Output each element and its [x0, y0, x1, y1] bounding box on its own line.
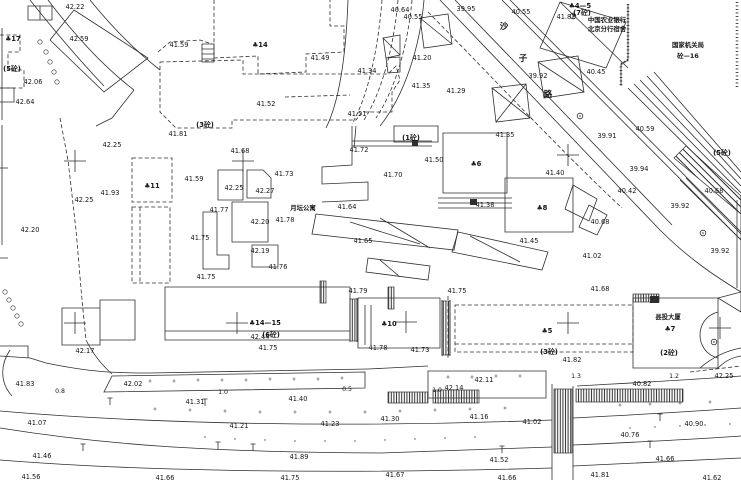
distance-label: 1.2: [669, 373, 679, 380]
spot-elevation-label: 42.11: [475, 376, 494, 384]
spot-elevation-label: 42.02: [124, 380, 143, 388]
spot-elevation-label: 41.78: [369, 344, 388, 352]
spot-elevation-label: 41.68: [231, 147, 250, 155]
plus-mark: [258, 410, 261, 413]
dot-mark: [414, 438, 415, 439]
spot-elevation-label: 40.45: [587, 68, 606, 76]
spot-elevation-label: 41.56: [22, 473, 41, 480]
grid-cross: [709, 317, 731, 339]
hedge-circle: [48, 60, 52, 64]
spot-elevation-label: 41.40: [289, 395, 308, 403]
plus-mark: [328, 410, 331, 413]
spot-elevation-label: 41.52: [257, 100, 276, 108]
distance-label: 0.8: [55, 388, 65, 395]
spot-elevation-label: 42.06: [24, 78, 43, 86]
grid-cross: [395, 311, 417, 333]
annotation-text-block: 北京分行宿舍: [588, 24, 627, 33]
plan-line: [455, 0, 672, 225]
hatched-wall: [442, 301, 450, 355]
tree-icon: [713, 341, 715, 343]
spot-elevation-label: 42.27: [256, 187, 275, 195]
road-name-character: 沙: [500, 22, 509, 32]
plan-line: [30, 0, 104, 86]
dot-mark: [729, 423, 730, 424]
spot-elevation-label: 42.17: [76, 347, 95, 355]
building-number-label: ♣10: [381, 320, 397, 328]
spot-elevation-label: 41.93: [101, 189, 120, 197]
dot-mark: [704, 424, 705, 425]
plan-dashed-line: [285, 95, 350, 97]
plan-line: [202, 44, 214, 62]
building-number-label: (2砼): [660, 348, 678, 357]
spot-elevation-label: 41.16: [470, 413, 489, 421]
spot-elevation-label: 41.75: [281, 474, 300, 480]
spot-elevation-label: 41.76: [269, 263, 288, 271]
spot-elevation-label: 41.73: [275, 170, 294, 178]
spot-elevation-label: 41.34: [358, 67, 377, 75]
plus-mark: [618, 403, 621, 406]
spot-elevation-label: 42.19: [251, 247, 270, 255]
hatched-wall: [576, 389, 683, 402]
plan-line: [0, 125, 8, 258]
spot-elevation-label: 40.82: [633, 380, 652, 388]
hatched-wall: [320, 281, 326, 303]
plus-mark: [340, 376, 343, 379]
spot-elevation-label: 41.21: [230, 422, 249, 430]
plan-line: [633, 292, 741, 368]
hatched-wall: [388, 392, 428, 403]
spot-elevation-label: 40.55: [512, 8, 531, 16]
dot-mark: [264, 439, 265, 440]
plus-mark: [494, 374, 497, 377]
plus-mark: [196, 378, 199, 381]
distance-label: 1.0: [432, 387, 442, 394]
distance-label: 1.0: [218, 389, 228, 396]
building-number-label: ♣8: [537, 204, 548, 212]
plus-mark: [153, 407, 156, 410]
spot-elevation-label: 41.67: [386, 471, 405, 479]
grid-cross: [64, 312, 86, 334]
plan-line: [96, 90, 134, 126]
spot-elevation-label: 41.40: [546, 169, 565, 177]
building-number-label: (6砼): [262, 330, 280, 339]
spot-elevation-label: 42.22: [66, 3, 85, 11]
plus-mark: [468, 407, 471, 410]
grid-cross: [557, 312, 579, 334]
survey-site-plan: 42.2242.5942.0642.6441.5942.2541.8141.93…: [0, 0, 741, 480]
spot-elevation-label: 41.66: [656, 455, 675, 463]
building-number-label: ♣14: [252, 41, 268, 49]
dot-mark: [354, 440, 355, 441]
dot-mark: [629, 427, 630, 428]
spot-elevation-label: 42.25: [225, 184, 244, 192]
spot-elevation-label: 41.45: [520, 237, 539, 245]
spot-elevation-label: 41.62: [703, 474, 722, 480]
tree-icon: [579, 115, 581, 117]
plus-mark: [188, 408, 191, 411]
plus-mark: [446, 375, 449, 378]
spot-elevation-label: 41.83: [16, 380, 35, 388]
spot-elevation-label: 41.68: [591, 285, 610, 293]
building-number-label: ♣7: [665, 325, 676, 333]
plan-dashed-line: [60, 118, 86, 340]
tree-icon: [702, 232, 704, 234]
plan-line: [383, 35, 400, 73]
spot-elevation-label: 41.20: [413, 54, 432, 62]
spot-elevation-label: 41.73: [411, 346, 430, 354]
hedge-circle: [11, 306, 15, 310]
spot-elevation-label: 41.49: [311, 54, 330, 62]
spot-elevation-label: 41.72: [350, 146, 369, 154]
spot-elevation-label: 41.78: [276, 216, 295, 224]
annotation-text-block: 县投大厦: [655, 312, 681, 321]
spot-elevation-label: 41.82: [563, 356, 582, 364]
spot-elevation-label: 41.51: [348, 110, 367, 118]
plan-line: [365, 305, 371, 345]
annotation-text-block: 月坛公寓: [289, 203, 316, 212]
plan-line: [0, 458, 741, 471]
dot-mark: [654, 426, 655, 427]
building-number-label: ♣5: [542, 327, 553, 335]
hedge-circle: [55, 80, 59, 84]
spot-elevation-label: 41.07: [28, 419, 47, 427]
spot-elevation-label: 41.75: [448, 287, 467, 295]
spot-elevation-label: 41.29: [447, 87, 466, 95]
spot-elevation-label: 42.64: [16, 98, 35, 106]
dot-mark: [294, 440, 295, 441]
plus-mark: [292, 377, 295, 380]
hatched-wall: [554, 389, 572, 453]
spot-elevation-label: 41.59: [185, 175, 204, 183]
plan-line: [0, 408, 741, 424]
plus-mark: [223, 409, 226, 412]
spot-elevation-label: 42.25: [103, 141, 122, 149]
distance-label: 1.3: [571, 373, 581, 380]
building-number-label: ♣6: [471, 160, 482, 168]
plus-mark: [708, 400, 711, 403]
spot-elevation-label: 41.23: [321, 420, 340, 428]
plus-mark: [293, 410, 296, 413]
spot-elevation-label: 41.38: [476, 201, 495, 209]
grid-cross: [64, 150, 86, 172]
hedge-circle: [15, 314, 19, 318]
spot-elevation-label: 41.35: [496, 131, 515, 139]
plan-line: [0, 356, 368, 373]
spot-elevation-label: 41.50: [425, 156, 444, 164]
site-plan-canvas: 42.2242.5942.0642.6441.5942.2541.8141.93…: [0, 0, 741, 480]
plus-mark: [648, 402, 651, 405]
plan-line: [368, 366, 428, 369]
spot-elevation-label: 41.02: [523, 418, 542, 426]
hedge-circle: [19, 322, 23, 326]
building-number-label: (1砼): [402, 133, 420, 142]
hatched-wall: [350, 299, 357, 341]
symbol-layer: [3, 13, 731, 453]
plan-dashed-line: [132, 158, 172, 283]
building-number-label: (5砼): [713, 148, 731, 157]
building-number-label: ♣14—15: [249, 319, 281, 327]
lamp-icon: [216, 442, 221, 449]
plus-mark: [518, 374, 521, 377]
plus-mark: [268, 377, 271, 380]
spot-elevation-label: 40.42: [618, 187, 637, 195]
road-name-character: 路: [544, 89, 553, 100]
plus-mark: [470, 375, 473, 378]
spot-elevation-label: 41.75: [191, 234, 210, 242]
plus-mark: [172, 379, 175, 382]
spot-elevation-label: 41.46: [33, 452, 52, 460]
spot-elevation-label: 39.94: [630, 165, 649, 173]
plan-line: [322, 126, 368, 202]
annotation-text-block: 中国农业银行: [588, 15, 627, 24]
hedge-circle: [44, 50, 48, 54]
spot-elevation-label: 42.59: [70, 35, 89, 43]
spot-elevation-label: 42.14: [445, 384, 464, 392]
plan-line: [50, 10, 148, 92]
building-number-label: (3砼): [196, 120, 214, 129]
spot-elevation-label: 40.68: [705, 187, 724, 195]
plus-mark: [316, 377, 319, 380]
spot-elevation-label: 39.95: [457, 5, 476, 13]
spot-elevation-label: 40.68: [591, 218, 610, 226]
lamp-icon: [658, 414, 663, 421]
plan-line: [492, 84, 530, 122]
building-number-label: (5砼): [3, 64, 21, 73]
dot-mark: [204, 436, 205, 437]
spot-elevation-label: 40.55: [404, 13, 423, 21]
spot-elevation-label: 41.65: [354, 237, 373, 245]
spot-elevation-label: 39.91: [598, 132, 617, 140]
dot-mark: [444, 437, 445, 438]
plan-line: [48, 0, 134, 90]
hedge-circle: [7, 298, 11, 302]
plan-line: [565, 185, 607, 235]
dot-mark: [234, 438, 235, 439]
lamp-icon: [81, 444, 86, 451]
spot-elevation-label: 42.20: [21, 226, 40, 234]
lamp-icon: [500, 446, 505, 453]
spot-elevation-label: 41.81: [169, 130, 188, 138]
dot-mark: [679, 425, 680, 426]
label-layer: 42.2242.5942.0642.6441.5942.2541.8141.93…: [3, 2, 733, 480]
spot-elevation-label: 39.92: [529, 72, 548, 80]
lamp-icon: [251, 444, 256, 451]
spot-elevation-label: 41.02: [583, 252, 602, 260]
spot-elevation-label: 41.77: [210, 206, 229, 214]
spot-elevation-label: 41.31: [186, 398, 205, 406]
spot-elevation-label: 39.92: [711, 247, 730, 255]
building-number-label: ♣17: [5, 35, 21, 43]
plus-mark: [363, 410, 366, 413]
spot-elevation-label: 41.59: [170, 41, 189, 49]
spot-elevation-label: 41.70: [384, 171, 403, 179]
lamp-icon: [108, 398, 113, 405]
spot-elevation-label: 42.25: [715, 372, 734, 380]
plus-mark: [220, 378, 223, 381]
lamp-icon: [648, 441, 653, 448]
spot-elevation-label: 41.64: [338, 203, 357, 211]
dot-mark: [324, 440, 325, 441]
plus-mark: [433, 408, 436, 411]
hedge-circle: [3, 290, 7, 294]
plus-mark: [148, 379, 151, 382]
hedge-circle: [52, 70, 56, 74]
plan-line: [326, 0, 348, 128]
spot-elevation-label: 40.90: [685, 420, 704, 428]
distance-label: 0.5: [342, 386, 352, 393]
spot-elevation-label: 41.66: [498, 474, 517, 480]
spot-elevation-label: 40.76: [621, 431, 640, 439]
plan-dashed-line: [428, 12, 622, 208]
plus-mark: [398, 409, 401, 412]
road-name-character: 子: [519, 54, 528, 64]
dot-mark: [384, 439, 385, 440]
plan-dashed-line: [214, 0, 344, 74]
spot-elevation-label: 41.66: [156, 474, 175, 480]
plan-line: [358, 298, 440, 348]
spot-elevation-label: 42.25: [75, 196, 94, 204]
dot-mark: [474, 436, 475, 437]
spot-elevation-label: 41.30: [381, 415, 400, 423]
spot-elevation-label: 41.81: [591, 471, 610, 479]
building-number-label: ♣11: [144, 182, 160, 190]
spot-elevation-label: 42.20: [251, 218, 270, 226]
plus-mark: [244, 378, 247, 381]
plan-line: [62, 300, 135, 345]
plan-line: [90, 0, 160, 70]
plan-line: [366, 258, 430, 280]
spot-elevation-label: 41.75: [197, 273, 216, 281]
hedge-circle: [38, 40, 42, 44]
spot-elevation-label: 39.92: [671, 202, 690, 210]
spot-elevation-label: 41.75: [259, 344, 278, 352]
annotation-text-block: 砼—16: [677, 51, 699, 60]
plan-line: [312, 214, 458, 250]
solid-structure-mark: [650, 296, 659, 303]
spot-elevation-label: 40.59: [636, 125, 655, 133]
spot-elevation-label: 41.89: [290, 453, 309, 461]
annotation-text-block: 国家机关局: [672, 40, 704, 49]
spot-elevation-label: 41.79: [349, 287, 368, 295]
plus-mark: [503, 406, 506, 409]
plan-line: [104, 372, 365, 392]
spot-elevation-label: 41.35: [412, 82, 431, 90]
hatch-layer: [320, 140, 741, 453]
spot-elevation-label: 41.52: [490, 456, 509, 464]
building-number-label: (3砼): [540, 347, 558, 356]
plan-line: [354, 126, 356, 148]
